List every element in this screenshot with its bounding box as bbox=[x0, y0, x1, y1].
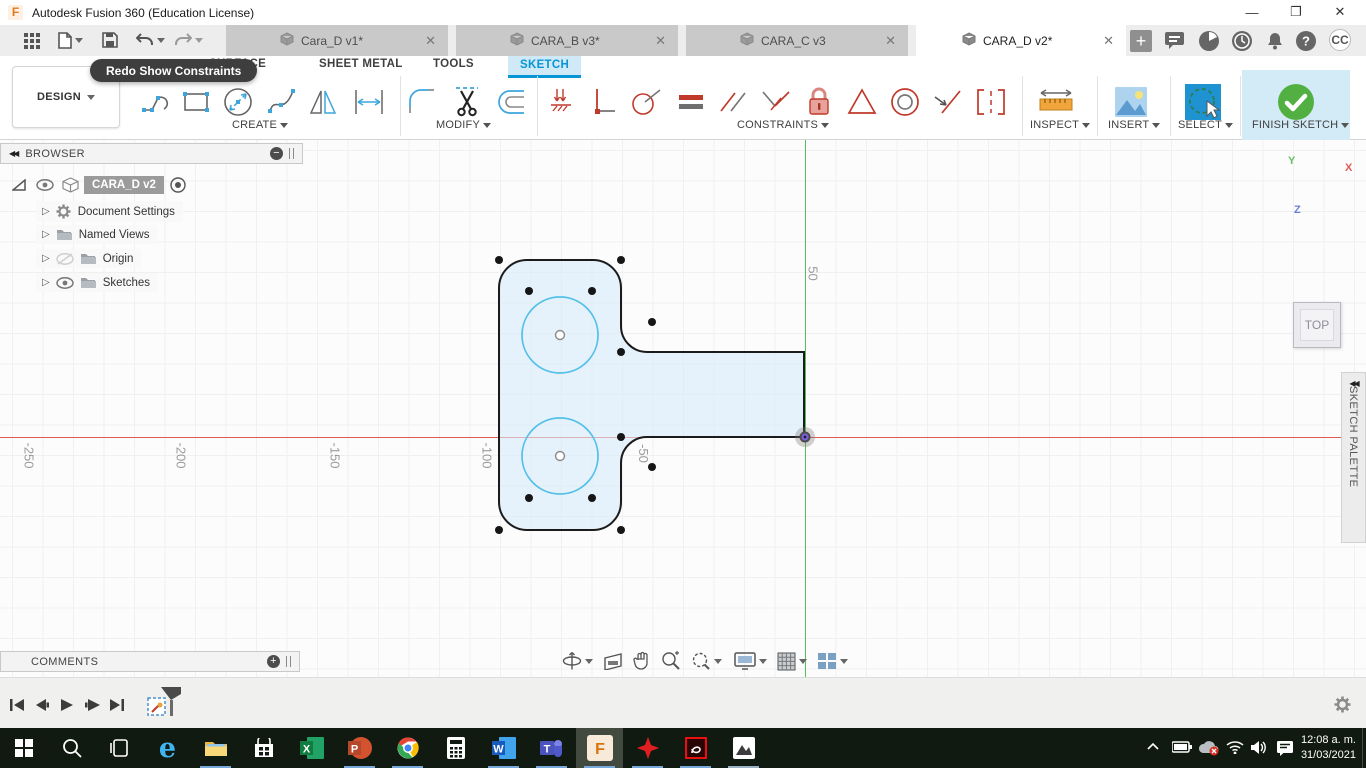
timeline-play-icon[interactable] bbox=[56, 694, 78, 716]
chrome-icon[interactable] bbox=[384, 728, 431, 768]
measure-tool-icon[interactable] bbox=[1037, 82, 1075, 122]
app-grid-icon[interactable] bbox=[24, 33, 40, 49]
browser-panel: ◀◀ BROWSER − CARA_D v2 ▷ Document Settin… bbox=[0, 143, 303, 164]
visibility-eye-icon[interactable] bbox=[56, 277, 74, 289]
insert-group-label[interactable]: INSERT bbox=[1108, 119, 1160, 131]
timeline-go-end-icon[interactable] bbox=[106, 694, 128, 716]
browser-item-origin[interactable]: ▷ Origin bbox=[36, 249, 141, 268]
tangent-constraint-icon[interactable] bbox=[628, 82, 666, 122]
finish-sketch-check-icon[interactable] bbox=[1277, 82, 1315, 122]
panel-grip[interactable] bbox=[286, 656, 291, 667]
browser-item-named-views[interactable]: ▷ Named Views bbox=[36, 225, 157, 244]
timeline-position-marker[interactable] bbox=[160, 686, 184, 725]
browser-item-label: Sketches bbox=[103, 277, 150, 289]
circle-center-point bbox=[556, 452, 565, 461]
svg-text:F: F bbox=[595, 741, 605, 758]
word-icon[interactable]: W bbox=[480, 728, 527, 768]
gear-icon bbox=[56, 204, 71, 219]
viewports-icon[interactable] bbox=[817, 652, 848, 670]
activate-radio-icon[interactable] bbox=[170, 177, 186, 193]
constraints-group-label[interactable]: CONSTRAINTS bbox=[737, 119, 829, 131]
excel-icon[interactable]: X bbox=[288, 728, 335, 768]
browser-item-label: Document Settings bbox=[78, 206, 175, 218]
viewcube-axis-y: Y bbox=[1288, 155, 1295, 167]
viewcube-face-top[interactable]: TOP bbox=[1300, 309, 1334, 341]
modify-group-label[interactable]: MODIFY bbox=[436, 119, 491, 131]
symmetry-constraint-icon[interactable] bbox=[972, 82, 1010, 122]
close-button[interactable]: ✕ bbox=[1318, 0, 1362, 24]
timeline-bar bbox=[0, 677, 1366, 728]
title-bar: F Autodesk Fusion 360 (Education License… bbox=[0, 0, 1366, 25]
svg-text:T: T bbox=[543, 744, 550, 756]
microsoft-store-icon[interactable] bbox=[240, 728, 287, 768]
document-tab-label: CARA_B v3* bbox=[531, 34, 600, 48]
fit-icon[interactable] bbox=[691, 651, 722, 671]
component-corner-icon bbox=[12, 179, 26, 191]
horizontal-vertical-constraint-icon[interactable] bbox=[585, 82, 623, 122]
mirror-tool-icon[interactable] bbox=[305, 82, 343, 122]
timeline-settings-gear-icon[interactable] bbox=[1334, 696, 1351, 718]
acrobat-icon[interactable] bbox=[672, 728, 719, 768]
browser-item-label: Named Views bbox=[79, 229, 150, 241]
svg-text:X: X bbox=[302, 744, 310, 756]
fix-constraint-icon[interactable] bbox=[800, 82, 838, 122]
comments-bar[interactable]: COMMENTS + bbox=[0, 651, 300, 672]
model-canvas[interactable]: -250 -200 -150 -100 -50 50 bbox=[0, 140, 1366, 677]
calculator-icon[interactable] bbox=[432, 728, 479, 768]
help-icon[interactable]: ? bbox=[1295, 30, 1317, 57]
browser-item-label: Origin bbox=[103, 253, 134, 265]
line-tool-icon[interactable] bbox=[137, 82, 175, 122]
tab-tools[interactable]: TOOLS bbox=[433, 58, 474, 78]
display-settings-icon[interactable] bbox=[734, 652, 767, 671]
edge-icon[interactable]: e bbox=[144, 728, 191, 768]
start-button[interactable] bbox=[0, 728, 47, 768]
wifi-icon[interactable] bbox=[1226, 740, 1244, 759]
tab-close-icon[interactable]: ✕ bbox=[425, 33, 436, 49]
grid-settings-icon[interactable] bbox=[777, 652, 807, 671]
panel-collapse-icon[interactable]: − bbox=[270, 147, 283, 160]
viewcube-axis-x: X bbox=[1345, 162, 1352, 174]
equal-constraint-icon[interactable] bbox=[672, 82, 710, 122]
tab-sketch[interactable]: SKETCH bbox=[508, 56, 581, 78]
save-icon[interactable] bbox=[102, 32, 118, 48]
select-tool-icon[interactable] bbox=[1184, 82, 1222, 122]
trim-tool-icon[interactable] bbox=[448, 82, 486, 122]
timeline-go-start-icon[interactable] bbox=[6, 694, 28, 716]
sketch-geometry[interactable] bbox=[0, 140, 1366, 677]
minimize-button[interactable]: — bbox=[1230, 0, 1274, 24]
tab-row: Cara_D v1* ✕ CARA_B v3* ✕ CARA_C v3 ✕ CA… bbox=[0, 25, 1366, 56]
new-tab-button[interactable]: + bbox=[1130, 30, 1152, 52]
document-icon bbox=[740, 32, 754, 49]
browser-root-label[interactable]: CARA_D v2 bbox=[84, 176, 164, 194]
offset-tool-icon[interactable] bbox=[492, 82, 530, 122]
expand-caret-icon[interactable]: ▷ bbox=[42, 229, 50, 240]
tooltip: Redo Show Constraints bbox=[90, 59, 257, 82]
visibility-off-eye-icon[interactable] bbox=[56, 253, 74, 265]
svg-text:W: W bbox=[493, 744, 504, 756]
fillet-tool-icon[interactable] bbox=[404, 82, 442, 122]
browser-title: BROWSER bbox=[25, 148, 85, 160]
folder-icon bbox=[56, 228, 72, 241]
visibility-eye-icon[interactable] bbox=[36, 179, 54, 191]
finish-sketch-label[interactable]: FINISH SKETCH bbox=[1252, 119, 1349, 131]
show-desktop-strip[interactable] bbox=[1362, 728, 1363, 768]
orbit-icon[interactable] bbox=[562, 651, 593, 671]
document-tab-label: Cara_D v1* bbox=[301, 34, 363, 48]
redo-icon[interactable] bbox=[174, 33, 203, 47]
select-group-label[interactable]: SELECT bbox=[1178, 119, 1233, 131]
rectangle-tool-icon[interactable] bbox=[178, 82, 216, 122]
component-cube-icon bbox=[62, 177, 79, 193]
viewcube-axis-z: Z bbox=[1294, 204, 1301, 216]
document-tab-active[interactable]: CARA_D v2* ✕ bbox=[916, 25, 1126, 56]
coincident-constraint-icon[interactable] bbox=[543, 82, 581, 122]
taskbar-clock[interactable]: 12:08 a. m. 31/03/2021 bbox=[1301, 733, 1356, 763]
folder-icon bbox=[80, 252, 96, 265]
document-tab[interactable]: Cara_D v1* ✕ bbox=[226, 25, 448, 56]
notifications-bell-icon[interactable] bbox=[1264, 30, 1286, 57]
document-tab-label: CARA_D v2* bbox=[983, 34, 1052, 48]
fusion360-window: F Autodesk Fusion 360 (Education License… bbox=[0, 0, 1366, 768]
dimension-tool-icon[interactable] bbox=[350, 82, 388, 122]
undo-icon[interactable] bbox=[136, 33, 165, 47]
feedback-icon[interactable] bbox=[1165, 32, 1184, 54]
origin-point bbox=[795, 427, 815, 447]
document-tab[interactable]: CARA_B v3* ✕ bbox=[456, 25, 678, 56]
circle-tool-icon[interactable] bbox=[219, 82, 257, 122]
search-icon[interactable] bbox=[48, 728, 95, 768]
workspace-label: DESIGN bbox=[37, 91, 81, 103]
window-title: Autodesk Fusion 360 (Education License) bbox=[32, 6, 254, 20]
job-status-icon[interactable] bbox=[1198, 30, 1220, 57]
file-explorer-icon[interactable] bbox=[192, 728, 239, 768]
clock-icon[interactable] bbox=[1231, 30, 1253, 57]
task-view-icon[interactable] bbox=[96, 728, 143, 768]
teams-icon[interactable]: T bbox=[528, 728, 575, 768]
navigation-bar bbox=[562, 648, 848, 674]
fusion-app-icon: F bbox=[8, 5, 23, 20]
svg-text:P: P bbox=[350, 744, 357, 756]
sketch-palette-strip[interactable]: ◀◀ SKETCH PALETTE bbox=[1341, 372, 1366, 543]
zoom-icon[interactable] bbox=[661, 651, 681, 671]
document-icon bbox=[962, 32, 976, 49]
insert-image-icon[interactable] bbox=[1112, 82, 1150, 122]
battery-icon[interactable] bbox=[1172, 740, 1192, 759]
expand-caret-icon[interactable]: ▷ bbox=[42, 277, 50, 288]
fusion360-taskbar-icon[interactable]: F bbox=[576, 728, 623, 768]
browser-header[interactable]: ◀◀ BROWSER − bbox=[0, 143, 303, 164]
tray-chevron-icon[interactable] bbox=[1146, 740, 1160, 759]
windows-taskbar: e X P W T F 12:08 a. m. 31/03/2021 bbox=[0, 728, 1366, 768]
document-icon bbox=[510, 32, 524, 49]
circle-center-point bbox=[556, 331, 565, 340]
document-tab[interactable]: CARA_C v3 ✕ bbox=[686, 25, 908, 56]
collapse-panel-icon[interactable]: ◀◀ bbox=[9, 149, 17, 158]
expand-caret-icon[interactable]: ▷ bbox=[42, 253, 50, 264]
tab-close-icon[interactable]: ✕ bbox=[655, 33, 666, 49]
browser-item-document-settings[interactable]: ▷ Document Settings bbox=[36, 201, 183, 222]
sketch-palette-title: SKETCH PALETTE bbox=[1347, 386, 1359, 536]
viewcube[interactable]: TOP bbox=[1293, 302, 1341, 348]
folder-icon bbox=[80, 276, 96, 289]
ribbon: DESIGN SURFACE SHEET METAL TOOLS SKETCH … bbox=[0, 56, 1366, 140]
document-icon bbox=[280, 32, 294, 49]
parallel-constraint-icon[interactable] bbox=[714, 82, 752, 122]
panel-grip[interactable] bbox=[289, 148, 294, 159]
timeline-step-back-icon[interactable] bbox=[31, 694, 53, 716]
comments-title: COMMENTS bbox=[31, 656, 98, 668]
collinear-constraint-icon[interactable] bbox=[929, 82, 967, 122]
browser-item-sketches[interactable]: ▷ Sketches bbox=[36, 273, 158, 292]
volume-icon[interactable] bbox=[1250, 740, 1268, 760]
midpoint-constraint-icon[interactable] bbox=[757, 82, 795, 122]
tab-close-icon[interactable]: ✕ bbox=[885, 33, 896, 49]
create-group-label[interactable]: CREATE bbox=[232, 119, 288, 131]
action-center-icon[interactable] bbox=[1276, 740, 1294, 761]
pan-icon[interactable] bbox=[633, 651, 651, 671]
clock-date: 31/03/2021 bbox=[1301, 748, 1356, 763]
inspect-group-label[interactable]: INSPECT bbox=[1030, 119, 1090, 131]
document-tab-label: CARA_C v3 bbox=[761, 34, 826, 48]
polygon-constraint-icon[interactable] bbox=[843, 82, 881, 122]
spline-tool-icon[interactable] bbox=[263, 82, 301, 122]
powerpoint-icon[interactable]: P bbox=[336, 728, 383, 768]
file-menu-icon[interactable] bbox=[58, 32, 83, 49]
onedrive-sync-error-icon[interactable] bbox=[1198, 740, 1220, 761]
avatar[interactable]: CC bbox=[1329, 29, 1351, 51]
browser-root-row[interactable]: CARA_D v2 bbox=[12, 173, 194, 197]
concentric-constraint-icon[interactable] bbox=[886, 82, 924, 122]
tab-sheet-metal[interactable]: SHEET METAL bbox=[319, 58, 403, 78]
look-at-icon[interactable] bbox=[603, 652, 623, 670]
timeline-step-forward-icon[interactable] bbox=[81, 694, 103, 716]
expand-caret-icon[interactable]: ▷ bbox=[42, 206, 50, 217]
photos-icon[interactable] bbox=[720, 728, 767, 768]
restore-button[interactable]: ❐ bbox=[1274, 0, 1318, 24]
clock-time: 12:08 a. m. bbox=[1301, 733, 1356, 748]
red-star-app-icon[interactable] bbox=[624, 728, 671, 768]
svg-text:?: ? bbox=[1302, 34, 1310, 49]
add-comment-icon[interactable]: + bbox=[267, 655, 280, 668]
tab-close-icon[interactable]: ✕ bbox=[1103, 33, 1114, 49]
